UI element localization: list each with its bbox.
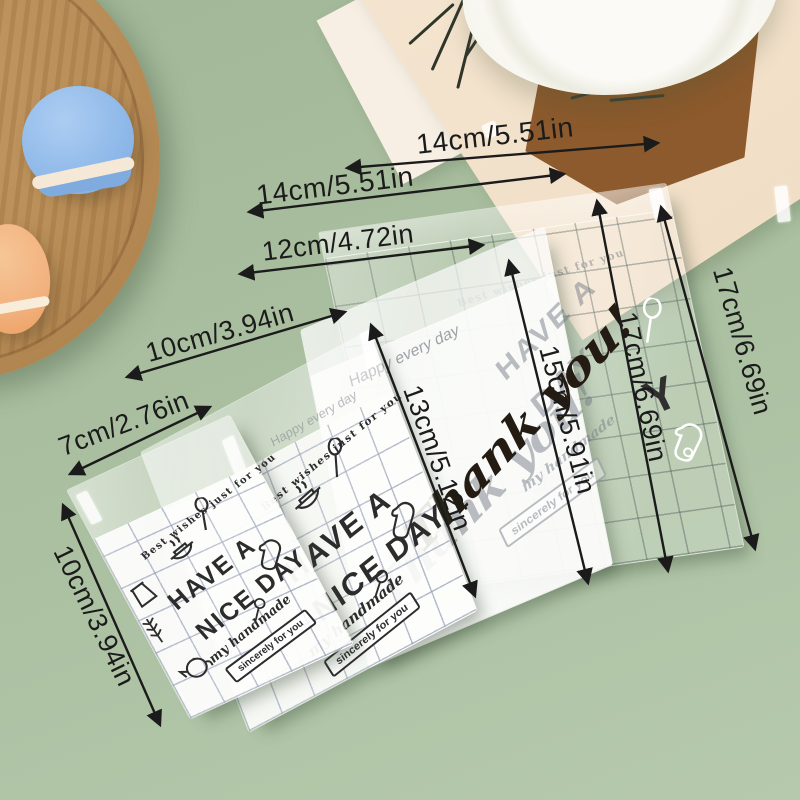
oven-mitt-icon: [669, 421, 712, 468]
dim-label-height-17-outer: 17cm/6.69in: [706, 263, 778, 418]
spoon-icon: [326, 436, 346, 480]
oven-mitt-icon: [255, 538, 291, 573]
dim-label-width-14: 14cm/5.51in: [255, 160, 416, 211]
product-photo: MODERNA MU Best wishes just for you Y Ha…: [0, 0, 800, 800]
dim-label-width-10: 10cm/3.94in: [142, 297, 297, 369]
oven-mitt-icon: [388, 499, 424, 543]
